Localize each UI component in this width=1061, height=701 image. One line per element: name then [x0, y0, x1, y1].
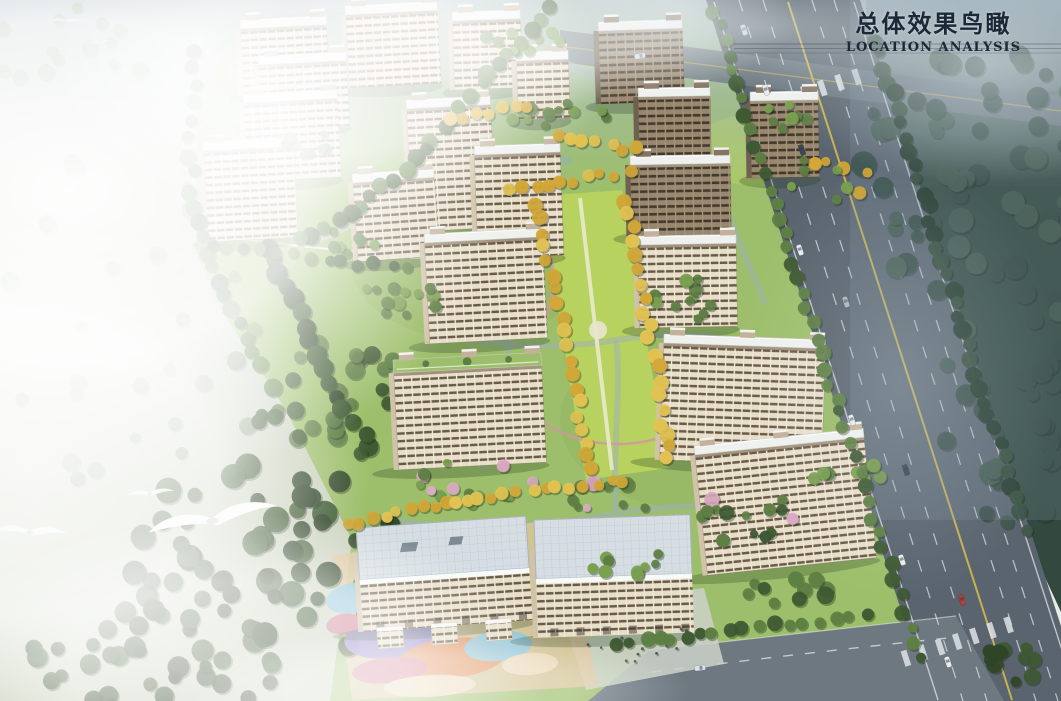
rendering-canvas	[0, 0, 1061, 701]
title-block: 总体效果鸟瞰 LOCATION ANALYSIS	[846, 10, 1021, 55]
aerial-rendering: 总体效果鸟瞰 LOCATION ANALYSIS	[0, 0, 1061, 701]
axis-plaza	[589, 321, 607, 339]
car	[694, 665, 705, 671]
page-subtitle: LOCATION ANALYSIS	[846, 40, 1021, 55]
page-title: 总体效果鸟瞰	[846, 10, 1021, 38]
